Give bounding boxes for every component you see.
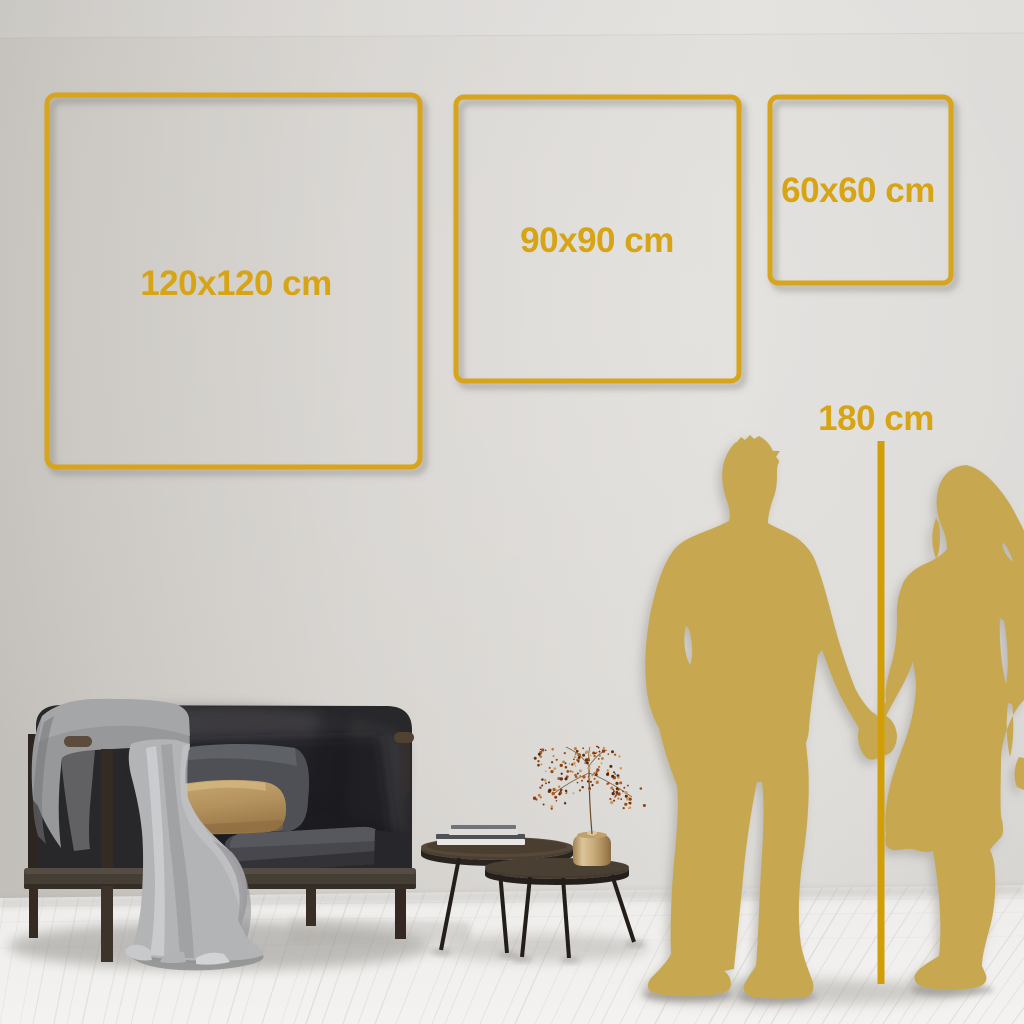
svg-text:120x120 cm: 120x120 cm — [140, 264, 332, 303]
svg-text:90x90 cm: 90x90 cm — [520, 221, 674, 260]
svg-text:180 cm: 180 cm — [818, 399, 934, 438]
svg-text:60x60 cm: 60x60 cm — [781, 171, 935, 210]
